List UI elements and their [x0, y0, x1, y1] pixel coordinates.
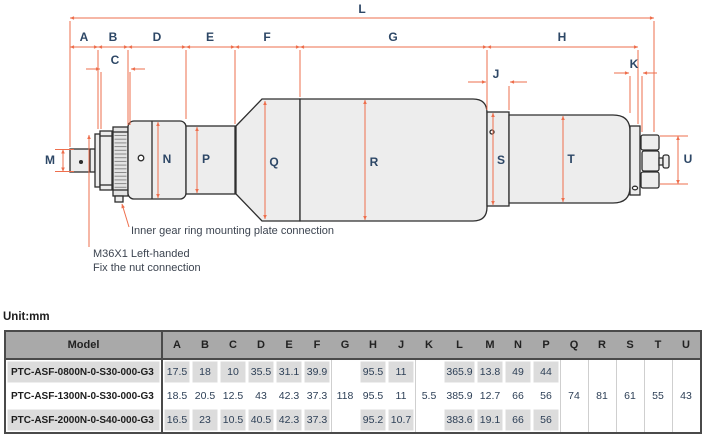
- cell-J: 11: [387, 384, 415, 408]
- annotation-m36-line1: M36X1 Left-handed: [93, 248, 190, 260]
- cell-Q-merged: 74: [560, 360, 588, 432]
- col-header-C: C: [219, 332, 247, 360]
- cell-D: 40.5: [247, 408, 275, 432]
- col-header-Q: Q: [560, 332, 588, 360]
- col-header-E: E: [275, 332, 303, 360]
- body-hole-front: [138, 155, 144, 161]
- label-C: C: [111, 53, 120, 67]
- dimension-table: ModelABCDEFGHJKLMNPQRSTU PTC-ASF-0800N-0…: [4, 330, 702, 434]
- col-header-B: B: [191, 332, 219, 360]
- col-header-S: S: [616, 332, 644, 360]
- label-T: T: [567, 152, 575, 166]
- label-E: E: [206, 30, 214, 44]
- col-header-K: K: [415, 332, 443, 360]
- col-header-T: T: [644, 332, 672, 360]
- col-header-model: Model: [6, 332, 163, 360]
- cell-D: 35.5: [247, 360, 275, 384]
- spindle-dimension-drawing: L A B D E F G H C J K M N P Q R S T U In…: [0, 0, 710, 302]
- label-U: U: [684, 152, 693, 166]
- shaft-front: [70, 149, 95, 172]
- label-N: N: [163, 152, 172, 166]
- cone-section-q: [236, 99, 300, 221]
- cell-B: 18: [191, 360, 219, 384]
- fix-nut: [100, 131, 112, 190]
- col-header-P: P: [532, 332, 560, 360]
- label-L: L: [358, 2, 365, 16]
- gear-mounting-tab: [115, 196, 123, 202]
- body-section-n: [128, 121, 186, 199]
- cell-model: PTC-ASF-0800N-0-S30-000-G3: [6, 360, 163, 384]
- datasheet-page: L A B D E F G H C J K M N P Q R S T U In…: [0, 0, 710, 441]
- cell-T-merged: 55: [644, 360, 672, 432]
- connector-cap: [663, 155, 669, 168]
- cell-U-merged: 43: [672, 360, 700, 432]
- gear-teeth-hatch: [115, 136, 127, 188]
- col-header-U: U: [672, 332, 700, 360]
- cell-M: 13.8: [476, 360, 504, 384]
- connector-block-middle: [642, 151, 659, 171]
- cell-M: 12.7: [476, 384, 504, 408]
- cell-model: PTC-ASF-1300N-0-S30-000-G3: [6, 384, 163, 408]
- col-header-N: N: [504, 332, 532, 360]
- label-D: D: [153, 30, 162, 44]
- label-R: R: [370, 155, 379, 169]
- col-header-R: R: [588, 332, 616, 360]
- cell-J: 10.7: [387, 408, 415, 432]
- cell-F: 39.9: [303, 360, 331, 384]
- cell-C: 12.5: [219, 384, 247, 408]
- cell-F: 37.3: [303, 384, 331, 408]
- end-plate: [630, 126, 640, 195]
- cell-L: 385.9: [443, 384, 476, 408]
- cell-P: 56: [532, 384, 560, 408]
- cell-H: 95.5: [359, 384, 387, 408]
- label-S: S: [497, 153, 505, 167]
- cell-C: 10.5: [219, 408, 247, 432]
- cell-E: 42.3: [275, 408, 303, 432]
- washer: [95, 134, 100, 187]
- cell-L: 365.9: [443, 360, 476, 384]
- cell-H: 95.2: [359, 408, 387, 432]
- cell-G-merged: 118: [331, 360, 359, 432]
- label-H: H: [558, 30, 567, 44]
- col-header-A: A: [163, 332, 191, 360]
- cell-C: 10: [219, 360, 247, 384]
- cell-D: 43: [247, 384, 275, 408]
- table-header-row: ModelABCDEFGHJKLMNPQRSTU: [6, 332, 700, 360]
- annotation-m36-line2: Fix the nut connection: [93, 262, 201, 274]
- cell-R-merged: 81: [588, 360, 616, 432]
- col-header-L: L: [443, 332, 476, 360]
- label-M: M: [45, 153, 55, 167]
- shaft-center-hole: [80, 161, 83, 164]
- connector-block-top: [641, 135, 659, 150]
- cell-B: 23: [191, 408, 219, 432]
- cell-A: 18.5: [163, 384, 191, 408]
- cell-P: 56: [532, 408, 560, 432]
- col-header-F: F: [303, 332, 331, 360]
- cell-A: 16.5: [163, 408, 191, 432]
- cell-model: PTC-ASF-2000N-0-S40-000-G3: [6, 408, 163, 432]
- cell-A: 17.5: [163, 360, 191, 384]
- table-body: PTC-ASF-0800N-0-S30-000-G317.5181035.531…: [6, 360, 700, 432]
- body-section-p: [186, 126, 235, 194]
- cell-J: 11: [387, 360, 415, 384]
- cell-B: 20.5: [191, 384, 219, 408]
- table-row: PTC-ASF-0800N-0-S30-000-G317.5181035.531…: [6, 360, 700, 384]
- cell-N: 66: [504, 408, 532, 432]
- gear-leader-line: [122, 204, 129, 227]
- col-header-D: D: [247, 332, 275, 360]
- label-J: J: [493, 67, 500, 81]
- label-B: B: [109, 30, 118, 44]
- label-P: P: [202, 152, 210, 166]
- main-cylinder-r: [300, 99, 487, 221]
- cell-P: 44: [532, 360, 560, 384]
- col-header-M: M: [476, 332, 504, 360]
- cell-K-merged: 5.5: [415, 360, 443, 432]
- unit-label: Unit:mm: [3, 311, 50, 323]
- cell-S-merged: 61: [616, 360, 644, 432]
- col-header-G: G: [331, 332, 359, 360]
- cell-E: 42.3: [275, 384, 303, 408]
- col-header-H: H: [359, 332, 387, 360]
- label-A: A: [80, 30, 89, 44]
- end-plate-hole: [632, 186, 637, 190]
- label-G: G: [388, 30, 397, 44]
- annotation-inner-gear: Inner gear ring mounting plate connectio…: [131, 225, 334, 237]
- label-K: K: [630, 57, 639, 71]
- connector-block-bottom: [641, 172, 659, 188]
- cell-N: 66: [504, 384, 532, 408]
- cell-E: 31.1: [275, 360, 303, 384]
- cell-L: 383.6: [443, 408, 476, 432]
- cell-M: 19.1: [476, 408, 504, 432]
- label-F: F: [263, 30, 270, 44]
- label-Q: Q: [269, 155, 278, 169]
- cell-H: 95.5: [359, 360, 387, 384]
- cell-F: 37.3: [303, 408, 331, 432]
- cell-N: 49: [504, 360, 532, 384]
- col-header-J: J: [387, 332, 415, 360]
